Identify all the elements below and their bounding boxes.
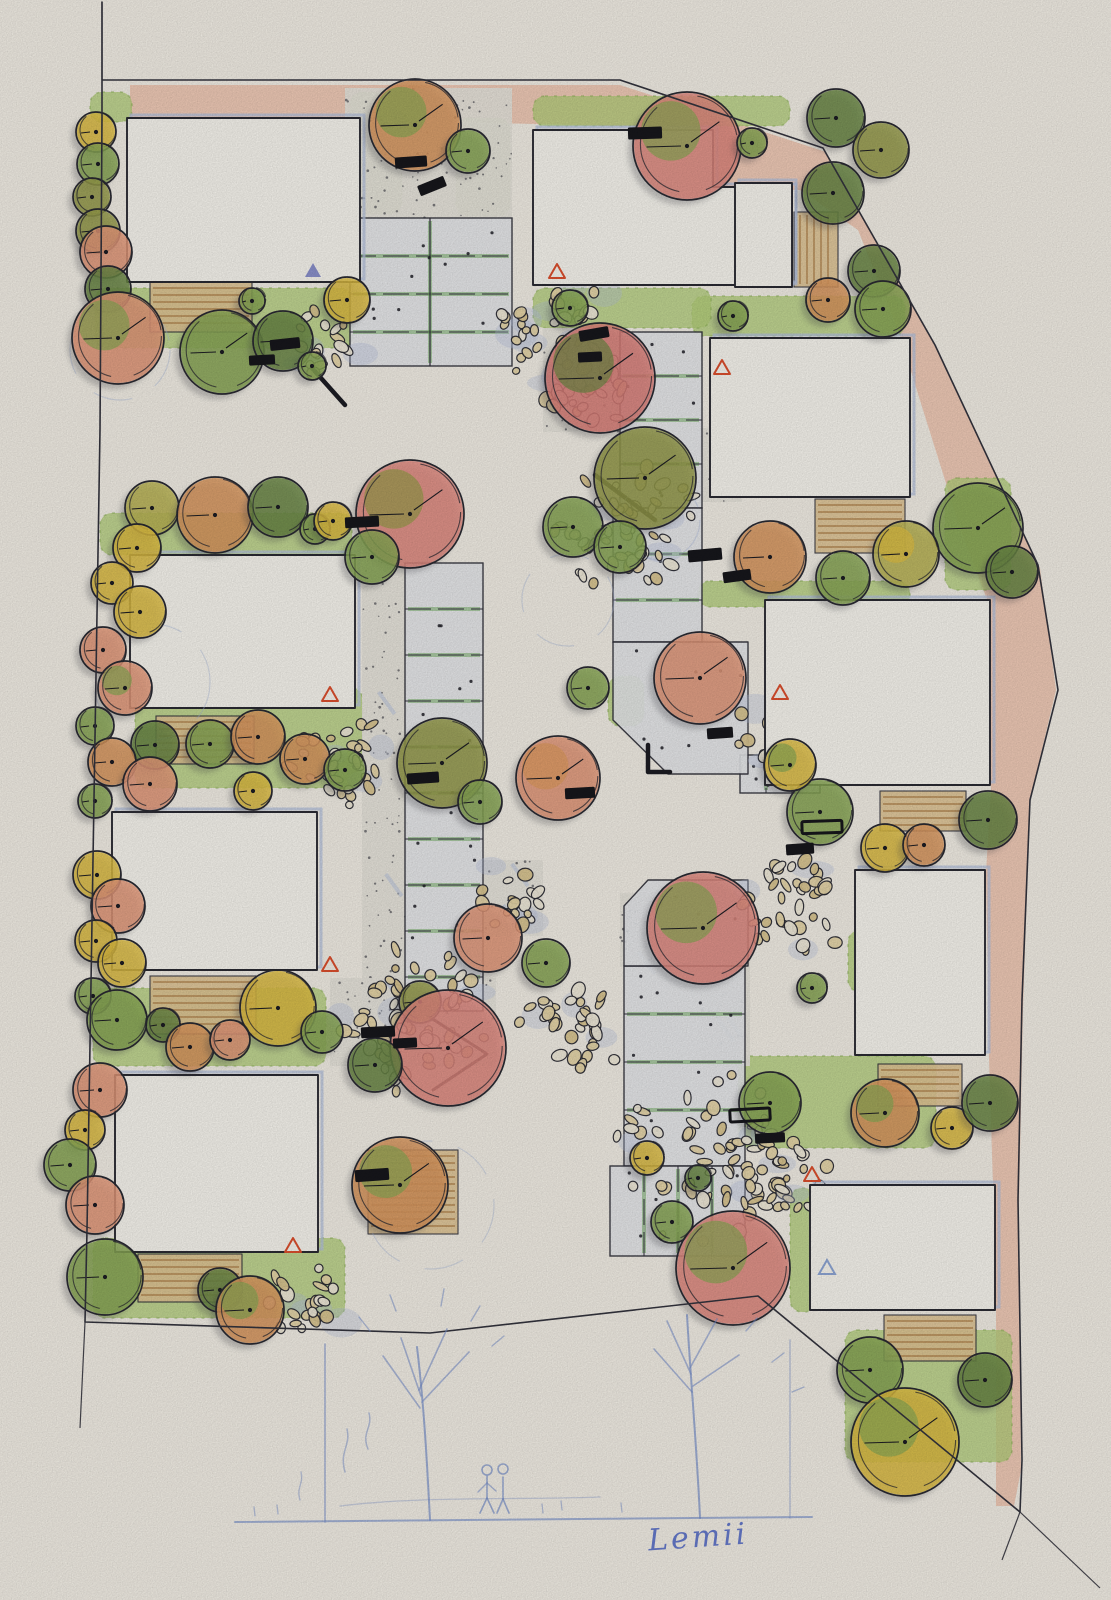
paper-grain: [0, 0, 1111, 1600]
site-plan-drawing: [0, 0, 1111, 1600]
signature: Lemii: [647, 1517, 750, 1559]
site-plan-canvas: Lemii: [0, 0, 1111, 1600]
